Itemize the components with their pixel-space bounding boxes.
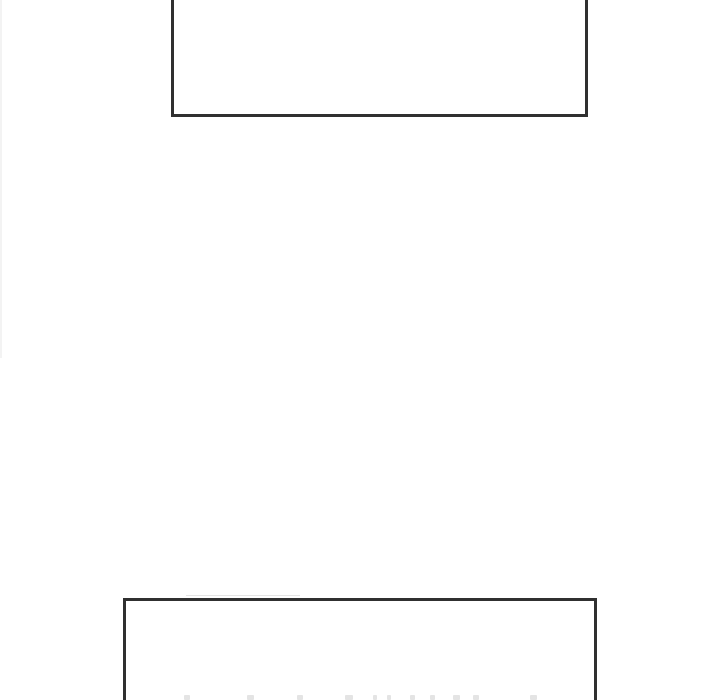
comic-panel-bottom (123, 598, 597, 700)
comic-panel-top (171, 0, 588, 117)
comic-page-canvas (0, 0, 720, 700)
page-left-edge-line (0, 0, 2, 358)
border-artifact-line (186, 595, 300, 596)
